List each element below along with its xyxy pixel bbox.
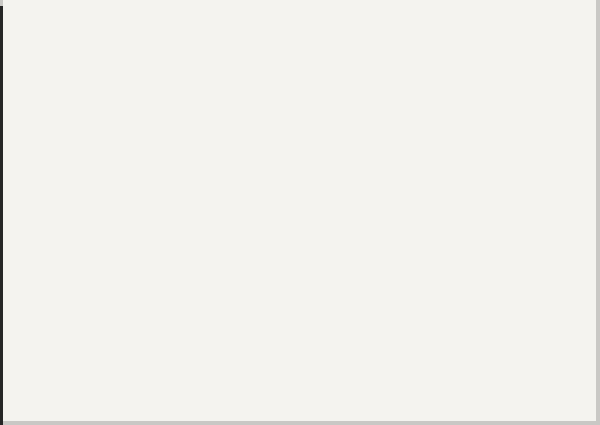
scanned-plan-page: 14.7713.9812.8511.7615.0416.2313.4012.28… <box>0 0 600 425</box>
scan-bottom-band <box>0 420 600 425</box>
paper-sheet <box>3 0 596 421</box>
scan-left-edge <box>0 6 3 425</box>
